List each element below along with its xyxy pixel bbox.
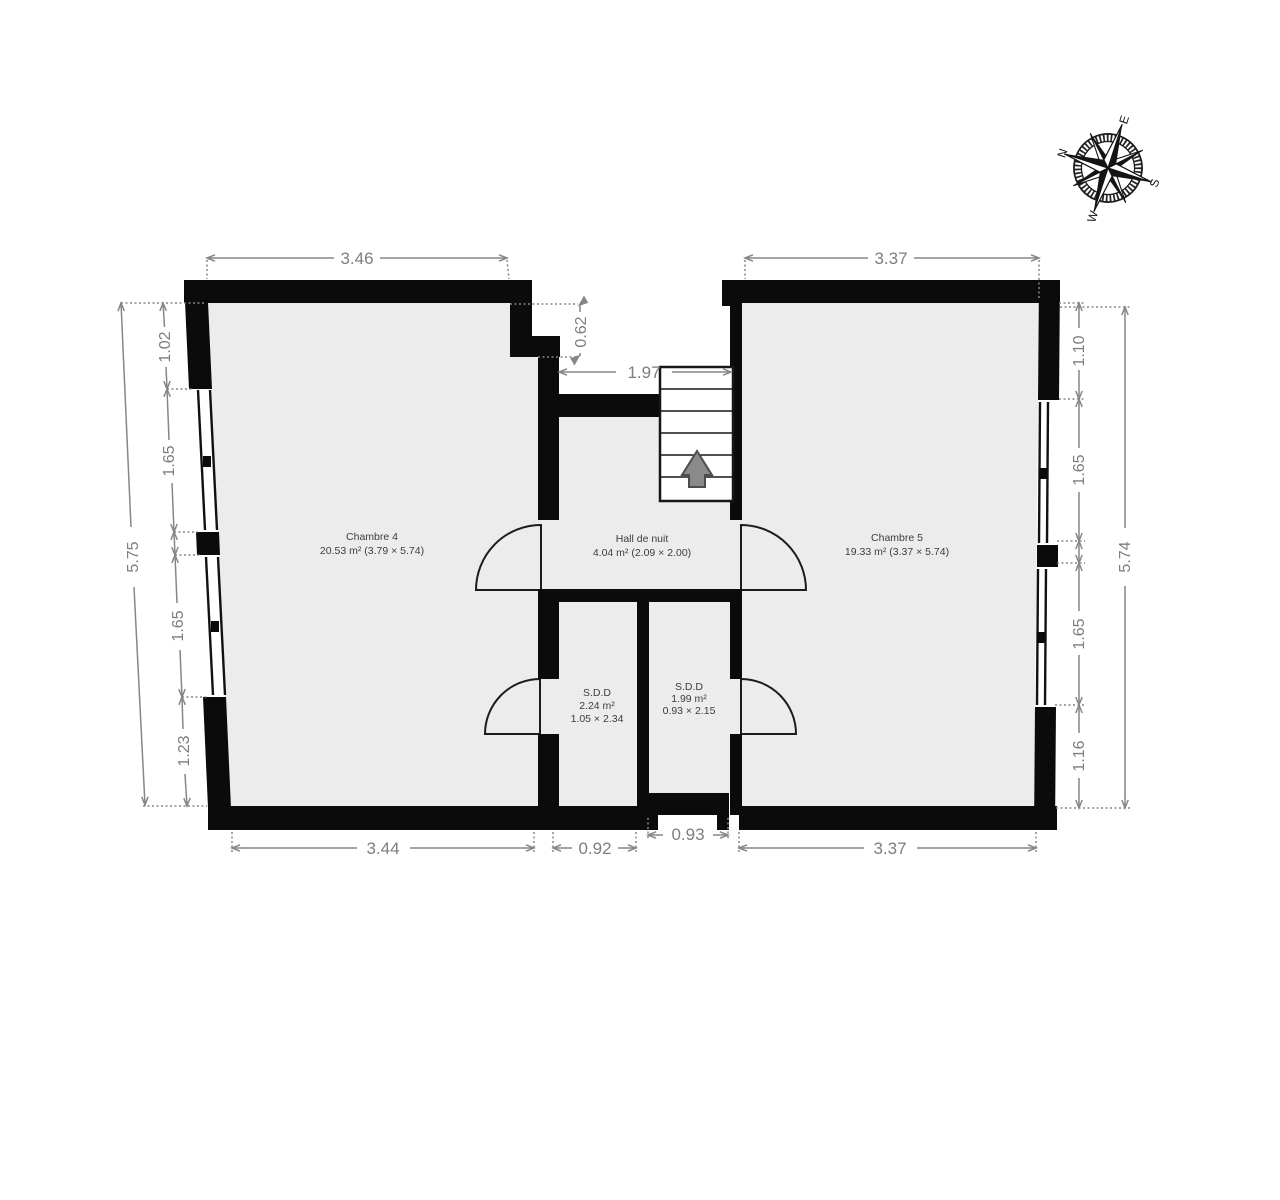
svg-text:5.75: 5.75 [125,541,142,572]
svg-text:1.23: 1.23 [176,735,193,766]
svg-text:1.05 × 2.34: 1.05 × 2.34 [571,713,624,725]
svg-text:0.92: 0.92 [578,839,611,858]
svg-text:4.04 m² (2.09 × 2.00): 4.04 m² (2.09 × 2.00) [593,547,691,559]
svg-text:1.97: 1.97 [627,363,660,382]
svg-text:1.10: 1.10 [1071,335,1088,366]
svg-text:1.99 m²: 1.99 m² [671,693,707,705]
svg-text:3.46: 3.46 [340,249,373,268]
svg-text:1.65: 1.65 [161,445,178,476]
svg-text:S.D.D: S.D.D [675,681,703,693]
svg-text:1.65: 1.65 [1071,618,1088,649]
svg-text:0.62: 0.62 [573,316,590,347]
svg-text:2.24 m²: 2.24 m² [579,700,615,712]
svg-text:S.D.D: S.D.D [583,687,611,699]
svg-text:19.33 m² (3.37 × 5.74): 19.33 m² (3.37 × 5.74) [845,546,949,558]
svg-text:1.65: 1.65 [1071,454,1088,485]
svg-text:1.65: 1.65 [170,610,187,641]
svg-text:3.44: 3.44 [366,839,399,858]
svg-text:3.37: 3.37 [874,249,907,268]
svg-text:1.16: 1.16 [1071,740,1088,771]
svg-text:0.93 × 2.15: 0.93 × 2.15 [663,705,716,717]
svg-text:3.37: 3.37 [873,839,906,858]
svg-text:20.53 m² (3.79 × 5.74): 20.53 m² (3.79 × 5.74) [320,545,424,557]
svg-text:Chambre 5: Chambre 5 [871,532,923,544]
svg-text:Chambre 4: Chambre 4 [346,531,398,543]
svg-text:1.02: 1.02 [157,331,174,362]
svg-text:Hall de nuit: Hall de nuit [616,533,669,545]
svg-text:0.93: 0.93 [671,825,704,844]
svg-text:5.74: 5.74 [1117,541,1134,572]
